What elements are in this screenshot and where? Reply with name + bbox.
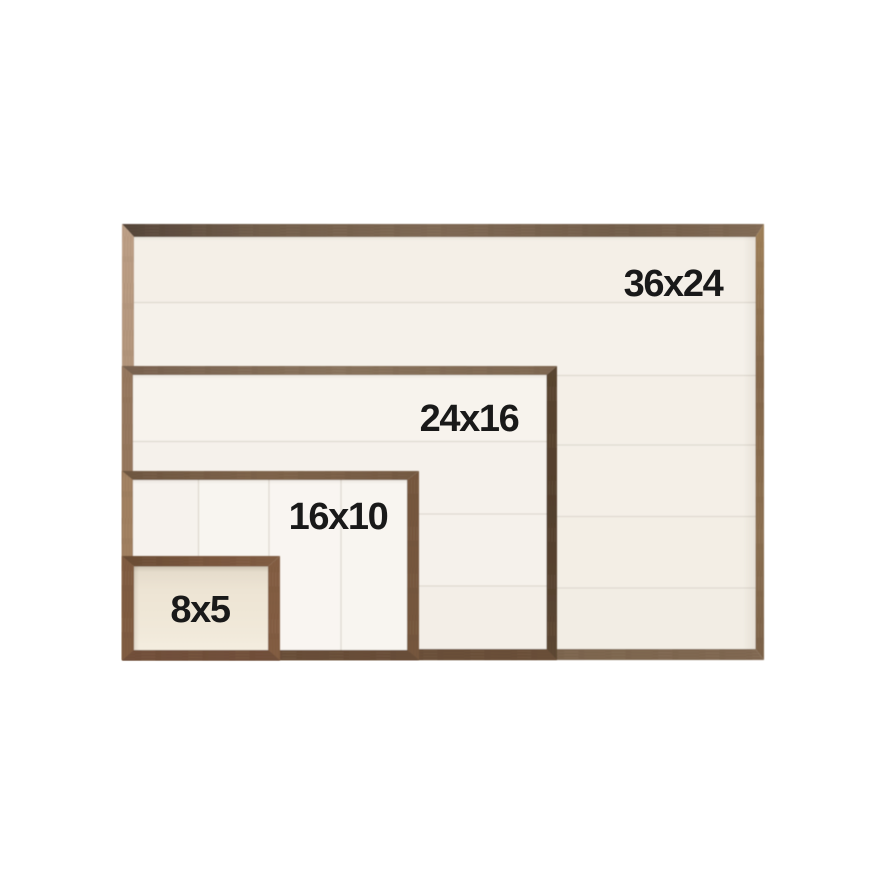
svg-text:24x16: 24x16 — [420, 398, 519, 440]
svg-text:16x10: 16x10 — [289, 496, 388, 538]
svg-text:8x5: 8x5 — [170, 589, 230, 631]
svg-text:36x24: 36x24 — [624, 263, 724, 305]
